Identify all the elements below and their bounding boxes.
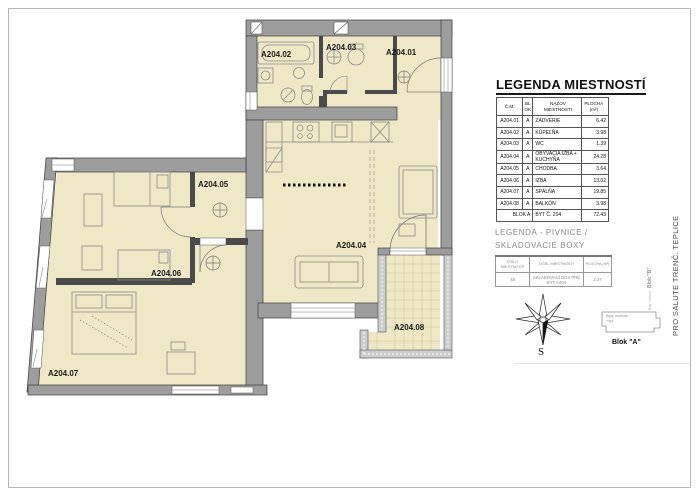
cell-area: 3.64 (581, 163, 608, 175)
cell-area: 24.28 (581, 150, 608, 163)
legend-storage-table: ČÍSLO MIESTNOSTI ÚČEL MIESTNOSTI PLOCHA … (495, 255, 612, 287)
cell-blok: A (523, 150, 533, 163)
cell-area: 13.02 (581, 175, 608, 187)
cell-cm: A204.07 (497, 186, 523, 198)
cell-cm: A204.06 (497, 175, 523, 187)
room-floors (37, 36, 441, 385)
cell-name: IZBA (533, 175, 581, 187)
drawing-sheet: A204.01 A204.02 A204.03 A204.04 A204.05 … (0, 0, 700, 495)
total-label: BLOK A (497, 210, 533, 222)
legend-rooms-title: LEGENDA MIESTNOSTÍ (496, 77, 646, 95)
project-side-text: PRO SALUTE TRENČ. TEPLICE (671, 215, 680, 336)
cell-purpose: SKLADOVACÍ BOX PRE BYT A204 (530, 273, 584, 287)
cell-area: 1.39 (581, 139, 608, 151)
table-row: A204.01 A ZÁDVERIE 6.42 (497, 116, 609, 128)
cell-name: BALKÓN (533, 198, 581, 210)
header-purpose: ÚČEL MIESTNOSTI (530, 256, 584, 273)
table-row: 48 SKLADOVACÍ BOX PRE BYT A204 2.37 (496, 273, 612, 287)
table-row: A204.03 A WC 1.39 (497, 139, 609, 151)
room-label-a204-01: A204.01 (386, 48, 417, 57)
legend-storage: LEGENDA - PIVNICE / SKLADOVACIE BOXY ČÍS… (495, 226, 655, 287)
cell-area: 2.37 (583, 273, 611, 287)
legend-rooms: LEGENDA MIESTNOSTÍ Č.M. BL OK NÁZOV MIES… (496, 76, 648, 222)
total-area: 72.43 (581, 210, 608, 222)
cell-name: CHODBA (533, 163, 581, 175)
cell-blok: A (523, 198, 533, 210)
table-header-row: Č.M. BL OK NÁZOV MIESTNOSTI PLOCHA (m²) (497, 98, 609, 116)
table-row: A204.07 A SPÁLŇA 19.85 (497, 186, 609, 198)
cell-cm: A204.04 (497, 150, 523, 163)
cell-blok: A (523, 186, 533, 198)
room-label-a204-04: A204.04 (336, 241, 367, 250)
room-label-a204-05: A204.05 (198, 180, 229, 189)
cell-area: 6.42 (581, 116, 608, 128)
header-blok: BL OK (523, 98, 533, 116)
cell-area: 3.98 (581, 198, 608, 210)
cell-cm: A204.05 (497, 163, 523, 175)
cell-cm: A204.01 (497, 116, 523, 128)
room-label-a204-07: A204.07 (48, 369, 79, 378)
compass-south-label: S (538, 346, 544, 358)
header-name: NÁZOV MIESTNOSTI (533, 98, 581, 116)
cell-cm: A204.02 (497, 127, 523, 139)
table-total-row: BLOK A BYT Č. 204 72.43 (497, 210, 609, 222)
cell-blok: A (523, 116, 533, 128)
table-row: A204.05 A CHODBA 3.64 (497, 163, 609, 175)
cell-blok: A (523, 175, 533, 187)
table-header-row: ČÍSLO MIESTNOSTI ÚČEL MIESTNOSTI PLOCHA … (496, 256, 612, 273)
block-b-label: Byty osobné Blok "B" (647, 267, 653, 310)
header-area: PLOCHA (m²) (581, 98, 608, 116)
cell-cm: A204.03 (497, 139, 523, 151)
cell-blok: A (523, 163, 533, 175)
block-a-outline (598, 306, 668, 340)
room-label-a204-06: A204.06 (151, 269, 182, 278)
cell-name: ZÁDVERIE (533, 116, 581, 128)
cell-blok: A (523, 139, 533, 151)
cell-cm: A204.08 (497, 198, 523, 210)
cell-name: OBÝVACIA IZBA + KUCHYŇA (533, 150, 581, 163)
block-a-note: Byty osobné +spl (606, 314, 628, 323)
room-label-a204-02: A204.02 (261, 50, 292, 59)
cell-name: KÚPEĽŇA (533, 127, 581, 139)
cell-name: WC (533, 139, 581, 151)
compass-rose (516, 294, 570, 345)
room-label-a204-08: A204.08 (394, 323, 425, 332)
header-cm: Č.M. (497, 98, 523, 116)
table-row: A204.08 A BALKÓN 3.98 (497, 198, 609, 210)
cell-number: 48 (496, 273, 530, 287)
table-row: A204.04 A OBÝVACIA IZBA + KUCHYŇA 24.28 (497, 150, 609, 163)
header-number: ČÍSLO MIESTNOSTI (496, 256, 530, 273)
total-name: BYT Č. 204 (533, 210, 581, 222)
table-row: A204.06 A IZBA 13.02 (497, 175, 609, 187)
cell-blok: A (523, 127, 533, 139)
titleblock-line (514, 363, 689, 364)
block-a-label: Blok "A" (612, 339, 641, 346)
cell-area: 3.98 (581, 127, 608, 139)
legend-storage-title: LEGENDA - PIVNICE / SKLADOVACIE BOXY (495, 226, 655, 252)
table-row: A204.02 A KÚPEĽŇA 3.98 (497, 127, 609, 139)
room-label-a204-03: A204.03 (326, 43, 357, 52)
header-area: PLOCHA (m²) (583, 256, 611, 273)
cell-name: SPÁLŇA (533, 186, 581, 198)
cell-area: 19.85 (581, 186, 608, 198)
legend-rooms-table: Č.M. BL OK NÁZOV MIESTNOSTI PLOCHA (m²) … (496, 97, 609, 222)
